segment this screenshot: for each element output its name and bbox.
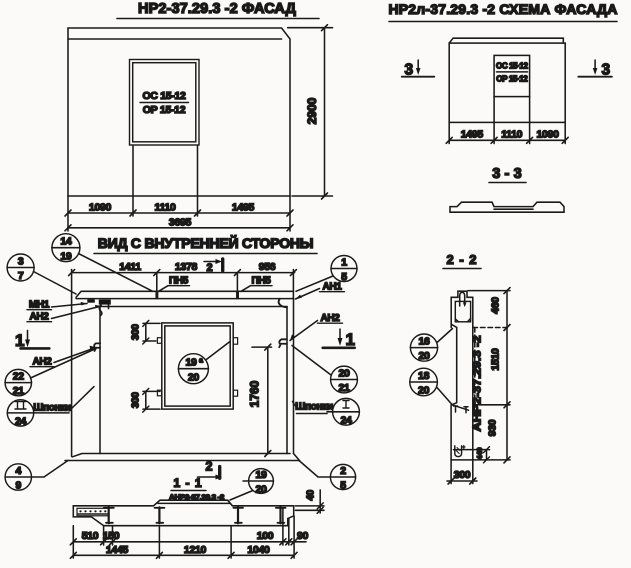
svg-text:НР2-37.29.3 -2 ФАСАД: НР2-37.29.3 -2 ФАСАД	[138, 1, 297, 17]
svg-text:АН2: АН2	[29, 312, 49, 323]
svg-text:ОР 15·12: ОР 15·12	[496, 74, 528, 83]
svg-text:1210: 1210	[184, 544, 207, 556]
svg-text:а: а	[199, 358, 203, 365]
svg-text:АН2: АН2	[320, 313, 340, 324]
svg-text:9: 9	[16, 480, 22, 492]
svg-text:3: 3	[18, 256, 24, 268]
svg-text:300: 300	[131, 392, 142, 409]
svg-text:1090: 1090	[537, 129, 560, 141]
svg-text:16: 16	[418, 336, 430, 348]
svg-text:24: 24	[340, 415, 352, 427]
svg-text:90: 90	[297, 530, 309, 542]
svg-text:ПН5: ПН5	[251, 276, 271, 287]
svg-text:1495: 1495	[232, 202, 255, 214]
svg-text:ПН5: ПН5	[169, 276, 189, 287]
svg-text:ВИД С ВНУТРЕННЕЙ СТОРОНЫ: ВИД С ВНУТРЕННЕЙ СТОРОНЫ	[98, 234, 314, 251]
svg-text:3695: 3695	[169, 216, 192, 228]
svg-text:22: 22	[13, 371, 25, 383]
svg-text:1 - 1: 1 - 1	[173, 476, 202, 490]
svg-text:20: 20	[255, 484, 267, 496]
svg-text:20: 20	[418, 385, 430, 397]
svg-text:1760: 1760	[248, 380, 262, 407]
svg-text:1411: 1411	[119, 261, 141, 273]
svg-text:19: 19	[60, 251, 72, 263]
svg-text:20: 20	[188, 372, 200, 384]
svg-text:1445: 1445	[106, 544, 129, 556]
svg-text:440: 440	[475, 448, 484, 460]
svg-text:2: 2	[207, 262, 213, 274]
svg-text:2: 2	[340, 465, 346, 477]
svg-text:460: 460	[490, 297, 502, 314]
svg-text:100: 100	[257, 530, 274, 542]
svg-text:3 - 3: 3 - 3	[492, 166, 522, 182]
svg-text:2 - 2: 2 - 2	[446, 252, 477, 267]
svg-text:МН1: МН1	[29, 300, 50, 311]
svg-text:АНР2-37.29.3 -2: АНР2-37.29.3 -2	[471, 336, 483, 432]
svg-text:2900: 2900	[305, 97, 319, 124]
svg-text:19: 19	[185, 357, 197, 369]
svg-text:5: 5	[341, 271, 347, 283]
svg-text:НР2л-37.29.3 -2 СХЕМА ФАСАДА: НР2л-37.29.3 -2 СХЕМА ФАСАДА	[388, 1, 617, 17]
svg-text:24: 24	[15, 416, 27, 428]
svg-text:Шпонки: Шпонки	[295, 402, 333, 413]
svg-text:1040: 1040	[247, 544, 270, 556]
svg-text:18: 18	[418, 370, 430, 382]
svg-text:21: 21	[13, 385, 25, 397]
svg-text:1495: 1495	[461, 129, 484, 141]
svg-text:21: 21	[338, 382, 350, 394]
svg-text:510: 510	[82, 530, 99, 542]
svg-text:Шпонки: Шпонки	[33, 403, 71, 414]
svg-text:ОР 15-12: ОР 15-12	[143, 104, 186, 116]
svg-text:14: 14	[60, 236, 72, 248]
svg-text:956: 956	[259, 261, 276, 273]
svg-text:1: 1	[346, 330, 355, 349]
svg-text:150: 150	[103, 530, 120, 542]
svg-text:19: 19	[255, 469, 267, 481]
svg-text:930: 930	[487, 419, 499, 436]
svg-text:7: 7	[18, 270, 24, 282]
svg-text:ОС 15-12: ОС 15-12	[142, 90, 186, 102]
svg-text:1: 1	[341, 257, 347, 269]
svg-text:20: 20	[418, 350, 430, 362]
svg-text:1378: 1378	[175, 261, 198, 273]
svg-text:1110: 1110	[155, 202, 176, 214]
svg-text:20: 20	[338, 368, 350, 380]
svg-text:1090: 1090	[89, 202, 112, 214]
svg-text:ОС 15·12: ОС 15·12	[496, 61, 528, 70]
svg-text:АН1: АН1	[322, 282, 342, 293]
svg-text:300: 300	[454, 469, 471, 481]
svg-text:1110: 1110	[501, 129, 522, 141]
svg-text:2: 2	[206, 460, 213, 474]
svg-text:40: 40	[306, 489, 317, 500]
svg-text:4: 4	[16, 465, 22, 477]
svg-text:300: 300	[131, 324, 142, 341]
svg-text:5: 5	[340, 480, 346, 492]
svg-text:АН2: АН2	[32, 357, 52, 368]
svg-text:1510: 1510	[490, 348, 502, 371]
